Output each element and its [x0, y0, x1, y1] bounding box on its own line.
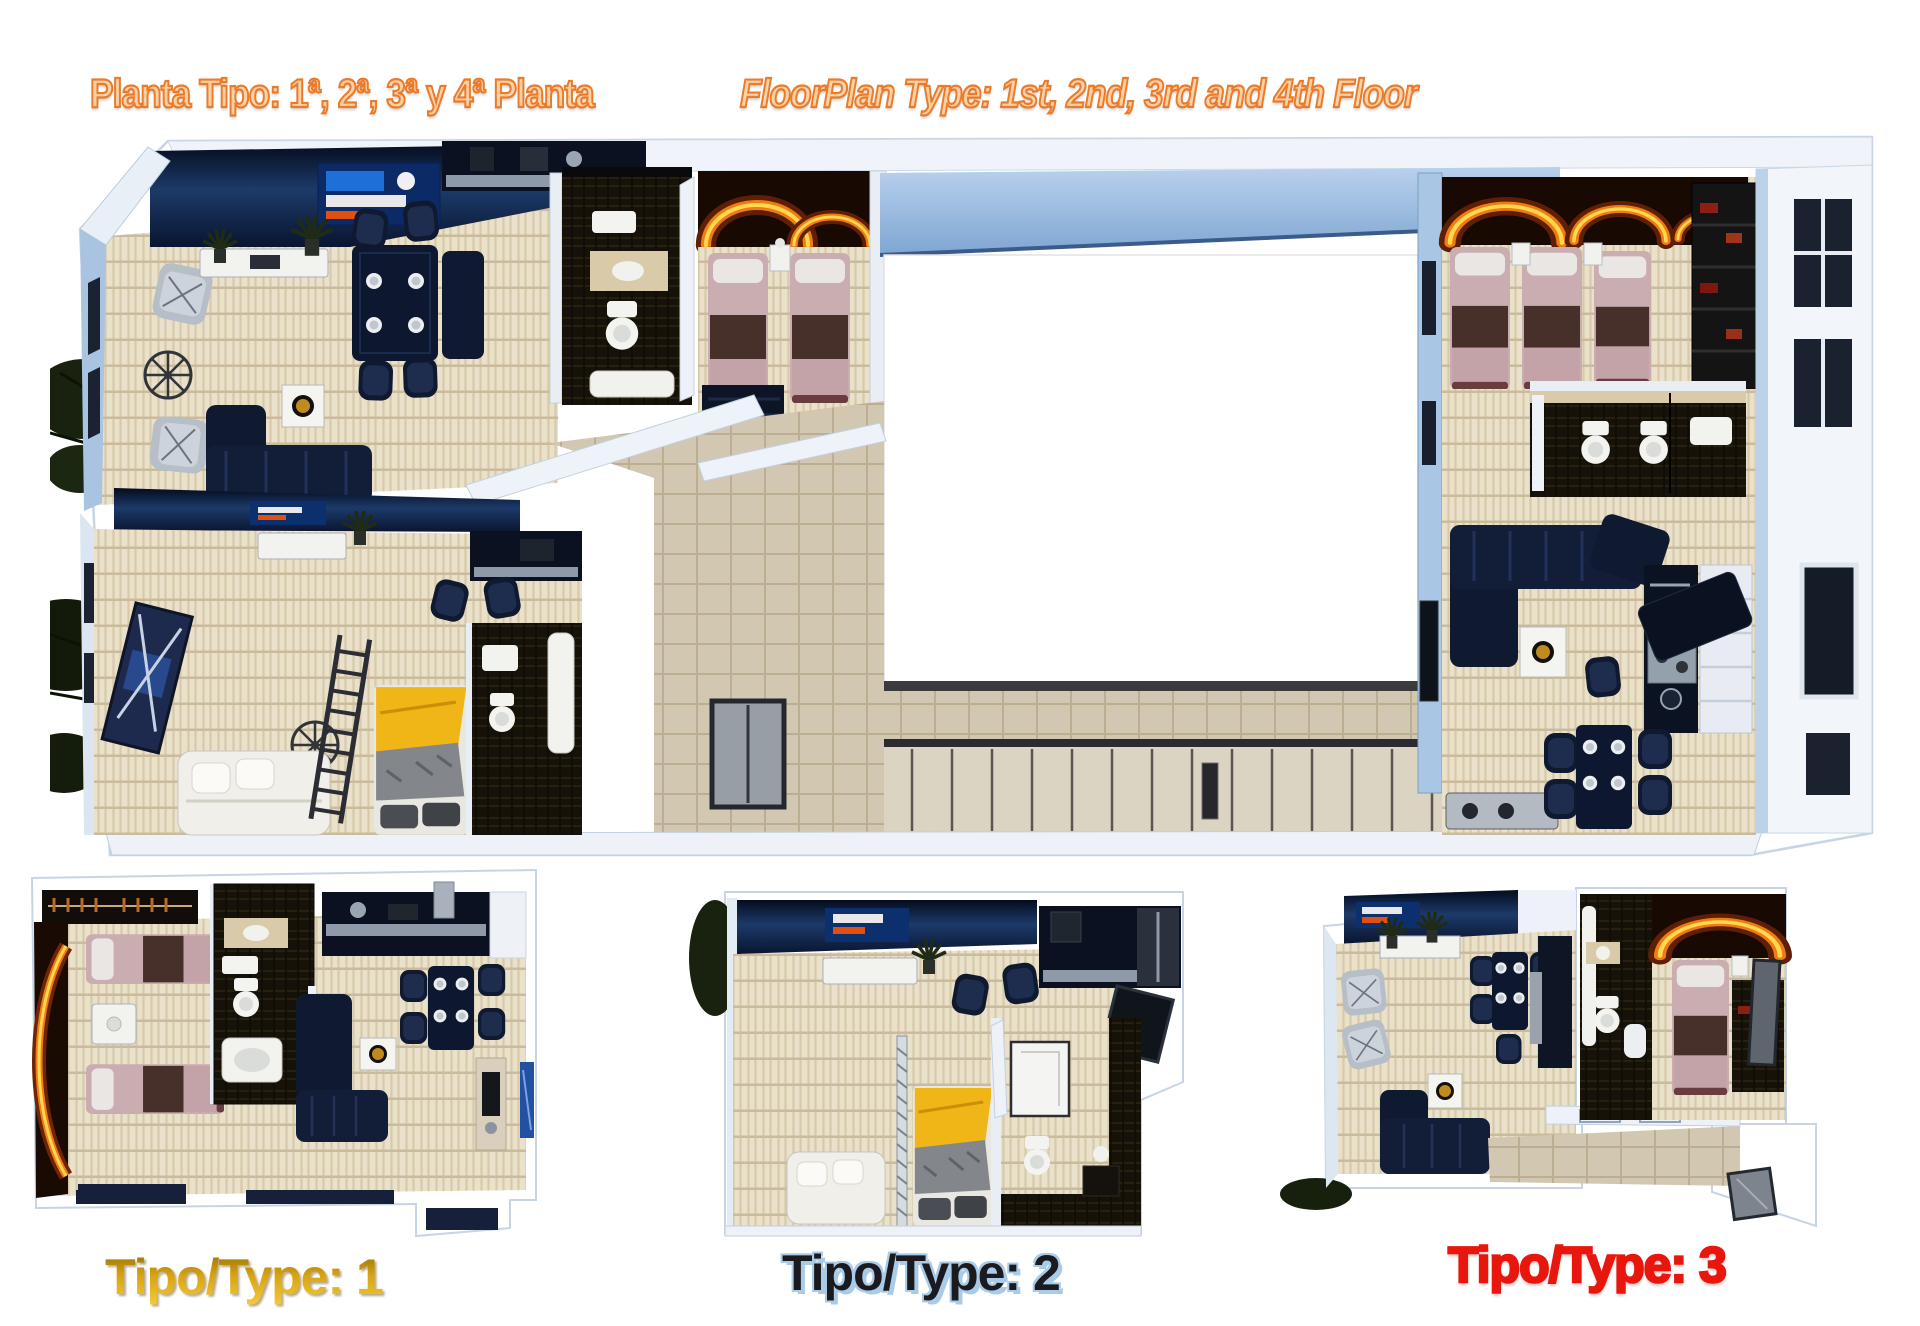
t2-sofa [787, 1152, 885, 1224]
page-title-english: FloorPlan Type: 1st, 2nd, 3rd and 4th Fl… [740, 72, 1417, 117]
unit-b-sofa [178, 751, 330, 835]
t2-divider [897, 1036, 907, 1228]
unit-a-bathroom [550, 167, 694, 405]
unit-c-bathroom [1530, 381, 1746, 497]
label-type-2: Tipo/Type: 2 [782, 1244, 1060, 1302]
label-type-3: Tipo/Type: 3 [1448, 1236, 1726, 1294]
unit-b-kitchen [470, 531, 582, 581]
t2-bathroom [991, 1018, 1141, 1226]
t1-kitchen [322, 882, 526, 958]
unit-c [1418, 165, 1872, 835]
page-title-spanish: Planta Tipo: 1ª, 2ª, 3ª y 4ª Planta [90, 72, 594, 117]
floorplan-type3-render [1280, 876, 1890, 1261]
unit-b-bed [374, 685, 469, 835]
floorplan-type2-render [685, 878, 1245, 1263]
main-floorplan-render [50, 133, 1880, 860]
courtyard-void [884, 255, 1418, 685]
t3-bathroom [1580, 894, 1660, 1120]
unit-b [80, 488, 582, 835]
floorplan-type1-render [28, 866, 588, 1256]
t3-bedroom [1652, 894, 1786, 1120]
t2-bed [913, 1086, 994, 1226]
t3-entry-door [1728, 1168, 1776, 1219]
unit-c-bedroom [1442, 177, 1766, 390]
label-type-1: Tipo/Type: 1 [105, 1248, 383, 1306]
t3-garden [1280, 1178, 1352, 1210]
floorplan-sheet: Planta Tipo: 1ª, 2ª, 3ª y 4ª Planta Floo… [0, 0, 1920, 1326]
unit-c-kitchen [1636, 565, 1754, 733]
exterior-wall-right [1756, 165, 1872, 833]
unit-b-bathroom [466, 623, 582, 835]
